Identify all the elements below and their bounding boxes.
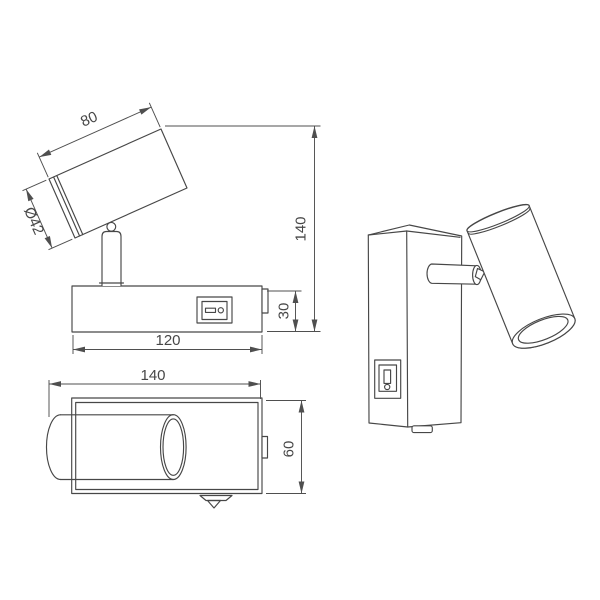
perspective-view (368, 200, 579, 432)
technical-drawing-page: 80 Ø42 120 30 140 (0, 0, 600, 600)
top-view-spot-cylinder (46, 415, 186, 480)
dim-label-30: 30 (276, 303, 293, 320)
pivot-arm (427, 264, 485, 285)
dimension-base-height: 30 (267, 291, 302, 332)
dim-label-140-width: 140 (140, 367, 165, 384)
cylinder-back-cap (46, 415, 60, 480)
switch-top-profile (200, 496, 232, 501)
dimension-base-width: 120 (73, 332, 262, 354)
switch-top-rocker (208, 501, 221, 509)
bottom-clip-tab (412, 426, 432, 433)
dimension-overall-depth: 60 (266, 401, 306, 494)
dim-label-60: 60 (281, 441, 298, 458)
box-outline (368, 225, 461, 427)
dim-label-140-height: 140 (293, 216, 310, 241)
dim-label-80: 80 (78, 108, 100, 130)
side-view: 80 Ø42 120 30 140 (20, 103, 320, 354)
base-plate (72, 286, 262, 332)
dimension-drawing-canvas: 80 Ø42 120 30 140 (0, 0, 600, 600)
top-view-switch (200, 496, 232, 509)
arm-body (427, 264, 477, 284)
top-view-mounting-tab (262, 437, 268, 459)
top-view-plate-inner (76, 403, 258, 490)
lamp-head (49, 129, 187, 238)
lens-ring-outer (161, 415, 187, 480)
lamp-head-body (49, 129, 187, 238)
dim-label-d42: Ø42 (20, 205, 47, 238)
side-mounting-tab (262, 289, 268, 313)
dimension-overall-width: 140 (49, 367, 261, 417)
top-view: 140 60 (46, 367, 306, 508)
dim-label-120: 120 (155, 332, 180, 349)
lens-ring-inner (163, 419, 184, 475)
wall-plate-box (368, 225, 461, 427)
swivel-stem (102, 232, 121, 287)
